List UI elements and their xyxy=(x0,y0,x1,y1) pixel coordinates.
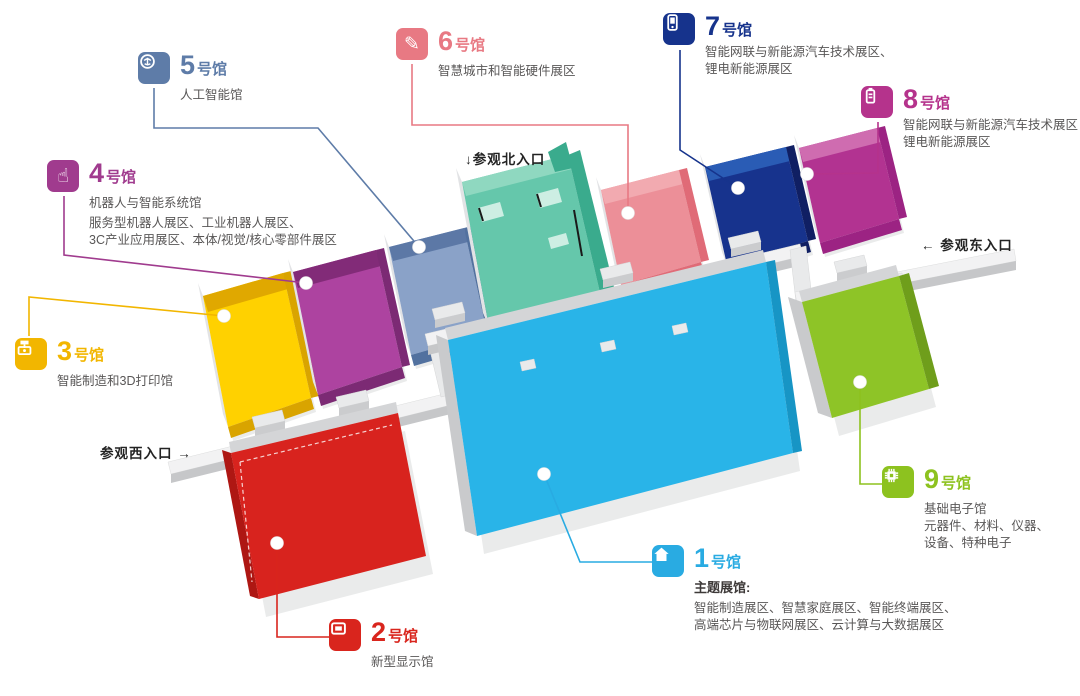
dot-hall-7 xyxy=(732,182,745,195)
hall-1-theme-heading: 主题展馆: xyxy=(694,580,957,596)
hall-8-title: 8号馆 xyxy=(903,86,1078,113)
exhibition-floor-map: 5号馆 人工智能馆 ✎ 6号馆 智慧城市和智能硬件展区 7号馆 智能网联与新能源… xyxy=(0,0,1080,696)
hand-icon: ☝ xyxy=(47,160,79,192)
battery-icon xyxy=(861,86,893,118)
dot-hall-8 xyxy=(801,168,814,181)
hall-4-title: 4号馆 xyxy=(89,160,337,187)
home-icon xyxy=(652,545,684,577)
dot-hall-6 xyxy=(622,207,635,220)
hall-7-desc: 智能网联与新能源汽车技术展区、 锂电新能源展区 xyxy=(705,44,893,78)
hall-3-name: 智能制造和3D打印馆 xyxy=(57,373,173,389)
hall-5-label: 5号馆 人工智能馆 xyxy=(138,52,243,103)
hall-3-label: 3号馆 智能制造和3D打印馆 xyxy=(15,338,173,389)
hall-4-label: ☝ 4号馆 机器人与智能系统馆 服务型机器人展区、工业机器人展区、 3C产业应用… xyxy=(47,160,337,249)
3d-printer-icon xyxy=(15,338,47,370)
hall-5-name: 人工智能馆 xyxy=(180,87,243,103)
west-entrance-label: 参观西入口 → xyxy=(100,442,192,462)
dot-hall-3 xyxy=(218,310,231,323)
dot-hall-1 xyxy=(538,468,551,481)
hall-9-label: 9号馆 基础电子馆 元器件、材料、仪器、 设备、特种电子 xyxy=(882,466,1049,552)
chip-icon xyxy=(882,466,914,498)
hall-2-title: 2号馆 xyxy=(371,619,434,646)
hall-6-label: ✎ 6号馆 智慧城市和智能硬件展区 xyxy=(396,28,576,79)
hall-1-desc: 智能制造展区、智慧家庭展区、智能终端展区、 高端芯片与物联网展区、云计算与大数据… xyxy=(694,600,957,634)
display-icon xyxy=(329,619,361,651)
handheld-device-icon xyxy=(663,13,695,45)
dot-hall-5 xyxy=(413,241,426,254)
hall-9-title: 9号馆 xyxy=(924,466,1049,493)
hall-9-name: 基础电子馆 xyxy=(924,501,1049,517)
hall-2-name: 新型显示馆 xyxy=(371,654,434,670)
hall-9-desc: 元器件、材料、仪器、 设备、特种电子 xyxy=(924,518,1049,552)
hall-8-desc: 智能网联与新能源汽车技术展区 锂电新能源展区 xyxy=(903,117,1078,151)
dot-hall-2 xyxy=(271,537,284,550)
dot-hall-4 xyxy=(300,277,313,290)
hall-4-desc: 服务型机器人展区、工业机器人展区、 3C产业应用展区、本体/视觉/核心零部件展区 xyxy=(89,215,337,249)
hall-7-label: 7号馆 智能网联与新能源汽车技术展区、 锂电新能源展区 xyxy=(663,13,893,78)
dot-hall-9 xyxy=(854,376,867,389)
leader-hall-3 xyxy=(29,297,224,336)
pen-icon: ✎ xyxy=(396,28,428,60)
hall-5-title: 5号馆 xyxy=(180,52,243,79)
hall-3-title: 3号馆 xyxy=(57,338,173,365)
hall-1-label: 1号馆 主题展馆: 智能制造展区、智慧家庭展区、智能终端展区、 高端芯片与物联网… xyxy=(652,545,957,634)
hall-2-label: 2号馆 新型显示馆 xyxy=(329,619,434,670)
brain-icon xyxy=(138,52,170,84)
east-entrance-label: ← 参观东入口 xyxy=(921,234,1013,254)
hall-4-name: 机器人与智能系统馆 xyxy=(89,195,337,211)
hall-8-label: 8号馆 智能网联与新能源汽车技术展区 锂电新能源展区 xyxy=(861,86,1078,151)
hall-7-title: 7号馆 xyxy=(705,13,893,40)
hall-6-title: 6号馆 xyxy=(438,28,576,55)
hall-6-name: 智慧城市和智能硬件展区 xyxy=(438,63,576,79)
north-entrance-label: ↓参观北入口 xyxy=(465,148,545,168)
